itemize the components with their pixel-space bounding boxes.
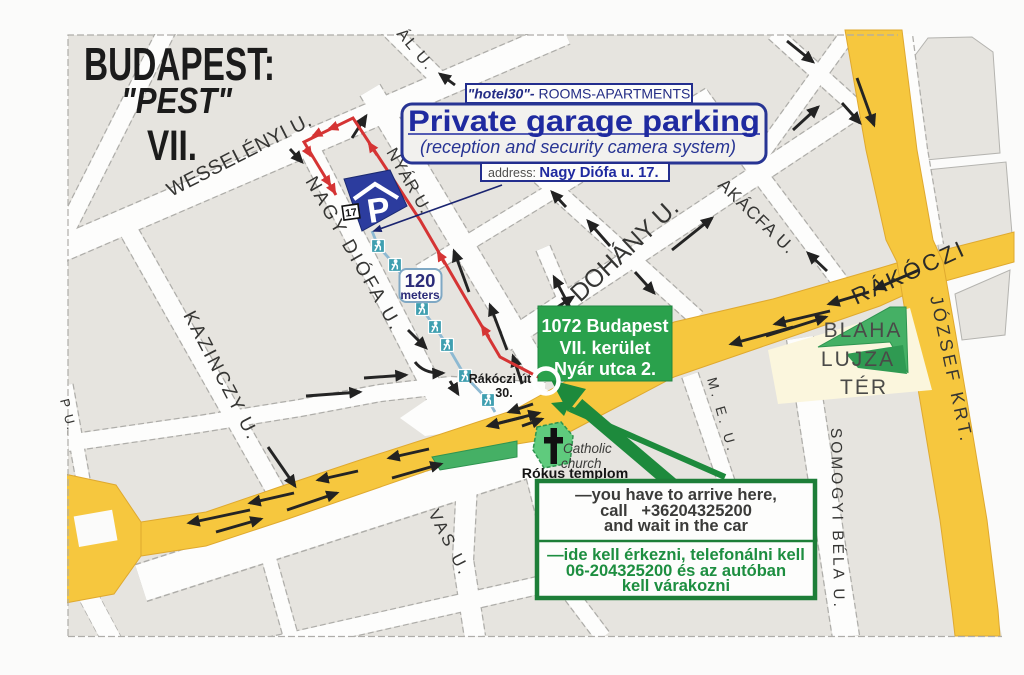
svg-text:address: Nagy Diófa u. 17.: address: Nagy Diófa u. 17. [488, 165, 659, 181]
svg-text:and wait in the car: and wait in the car [604, 517, 749, 535]
svg-text:TÉR: TÉR [840, 376, 888, 399]
svg-text:Catholic: Catholic [563, 441, 612, 456]
svg-text:17: 17 [345, 206, 358, 220]
svg-text:SOMOGYI BÉLA U.: SOMOGYI BÉLA U. [827, 428, 847, 610]
svg-text:(reception and security camera: (reception and security camera system) [420, 137, 736, 157]
svg-text:"hotel30"- ROOMS-APARTMENTS: "hotel30"- ROOMS-APARTMENTS [468, 86, 691, 102]
svg-text:VII. kerület: VII. kerület [559, 338, 650, 358]
svg-text:"PEST": "PEST" [121, 80, 233, 121]
svg-text:1072 Budapest: 1072 Budapest [541, 316, 668, 336]
svg-text:Private garage parking: Private garage parking [408, 105, 760, 138]
svg-text:BLAHA: BLAHA [824, 319, 903, 342]
svg-text:30.: 30. [495, 386, 512, 400]
svg-text:Nyár utca 2.: Nyár utca 2. [554, 359, 656, 379]
svg-text:LUJZA: LUJZA [821, 348, 895, 371]
svg-text:kell várakozni: kell várakozni [622, 577, 730, 595]
svg-text:meters: meters [400, 288, 440, 302]
svg-text:Rákóczi út: Rákóczi út [469, 372, 532, 386]
svg-text:VII.: VII. [147, 122, 197, 170]
